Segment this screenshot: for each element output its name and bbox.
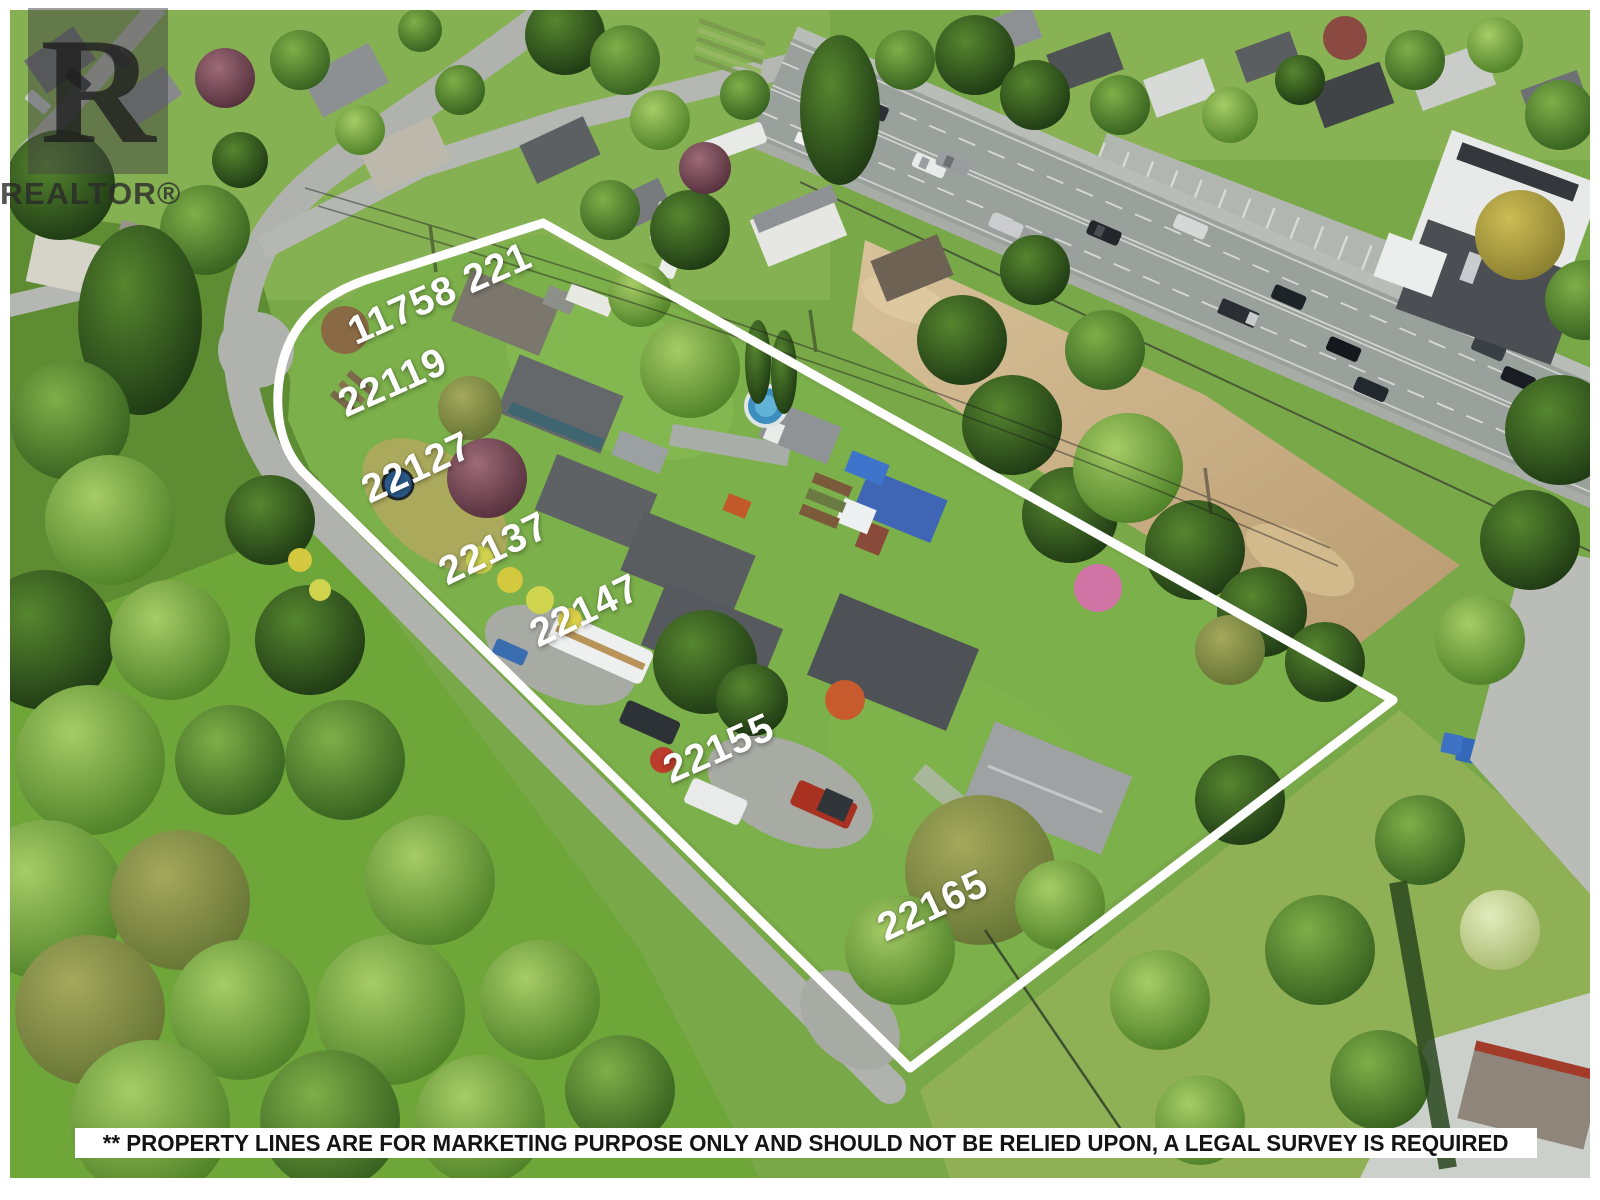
disclaimer-text: ** PROPERTY LINES ARE FOR MARKETING PURP… [103,1130,1509,1157]
realtor-brand-text: REALTOR® [0,176,194,212]
aerial-listing-photo: 11758 221221192212722137221472215522165 … [0,0,1600,1200]
realtor-logo-box: R [28,8,168,174]
aerial-photo [0,0,1600,1200]
disclaimer-banner: ** PROPERTY LINES ARE FOR MARKETING PURP… [75,1128,1537,1158]
realtor-logo-r: R [40,15,155,167]
realtor-watermark: R REALTOR® [0,0,200,220]
trampoline [383,469,413,499]
photo-scene [0,0,1600,1200]
